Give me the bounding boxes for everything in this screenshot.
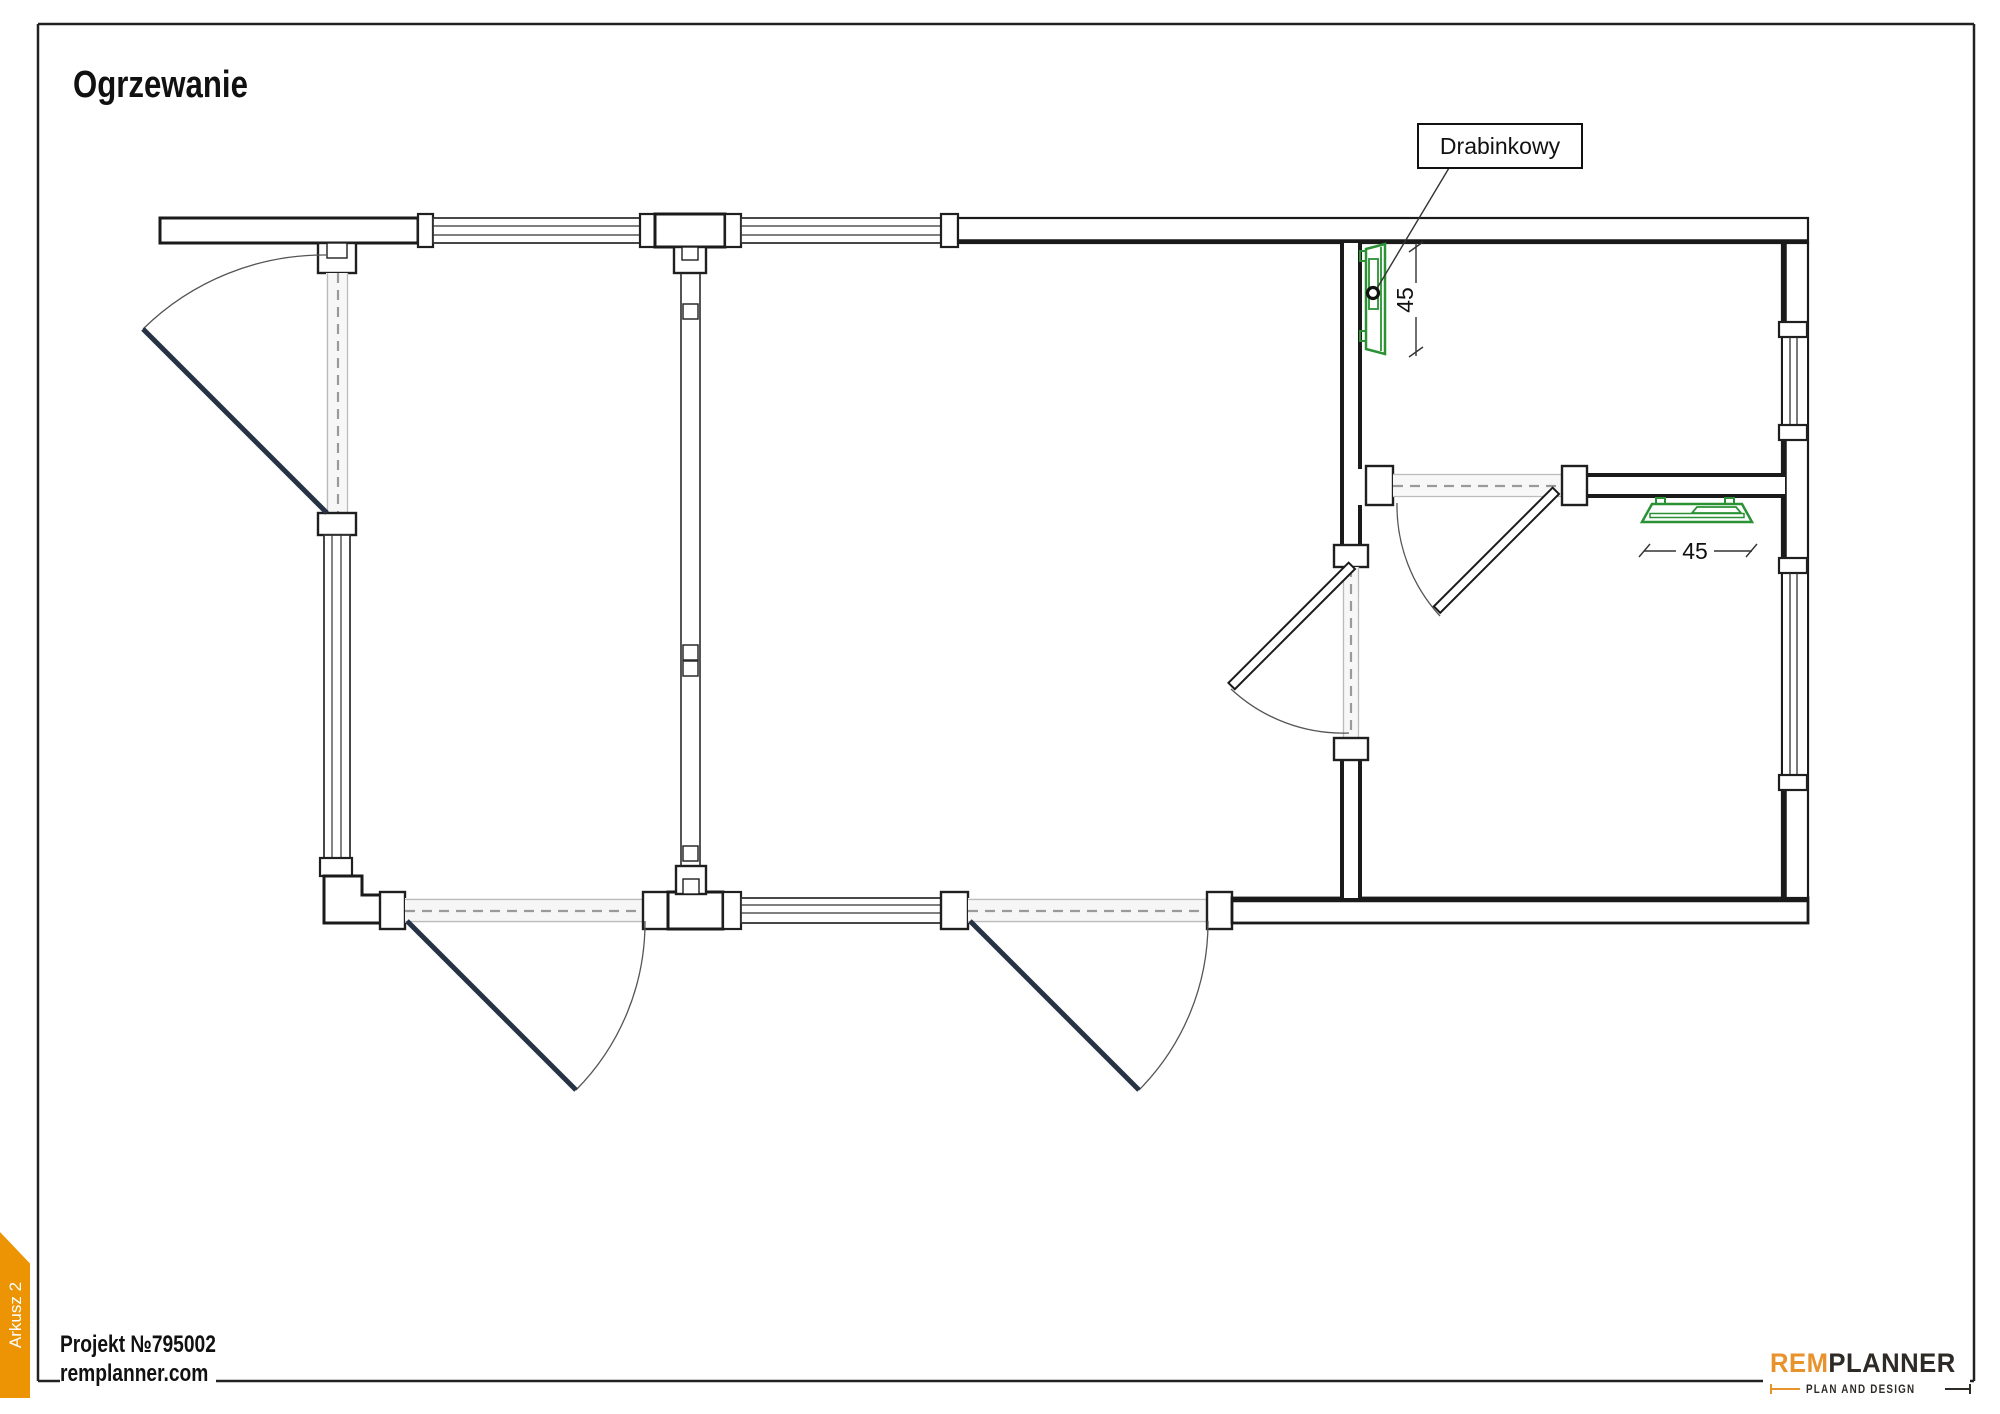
project-number: Projekt №795002 — [60, 1330, 216, 1359]
left-door-opening — [326, 273, 348, 513]
logo-dimline-left — [1770, 1388, 1800, 1390]
door-jamb — [318, 513, 356, 535]
door-jamb — [1334, 738, 1368, 760]
dimension-horizontal-value: 45 — [1682, 538, 1708, 564]
website-link[interactable]: remplanner.com — [60, 1359, 216, 1388]
leader-marker — [1368, 288, 1379, 299]
door-left-wall — [143, 255, 327, 513]
wall-tee-block — [655, 214, 725, 247]
window-jamb — [723, 892, 741, 929]
door-bottom-left — [407, 921, 645, 1090]
door-jamb — [941, 892, 968, 929]
door-bottom-right — [970, 921, 1208, 1090]
right-section-door-opening — [1393, 474, 1562, 497]
right-section-interior-wall — [1366, 466, 1785, 505]
logo-planner: PLANNER — [1828, 1348, 1955, 1378]
window-jamb — [941, 214, 958, 247]
page-title: Ogrzewanie — [73, 64, 248, 107]
annotation-label: Drabinkowy — [1440, 133, 1561, 159]
footer-project-block: Projekt №795002 remplanner.com — [60, 1330, 216, 1388]
logo-rem: REM — [1770, 1348, 1828, 1378]
wall-connector — [683, 645, 698, 660]
wall-connector — [683, 661, 698, 676]
top-window-left-room — [433, 218, 640, 243]
logo-wordmark: REMPLANNER — [1770, 1348, 1960, 1379]
logo-tagline-row: PLAN AND DESIGN — [1770, 1382, 1970, 1396]
sheet-canvas: Drabinkowy 45 45 Ogrzewanie Projekt №795… — [0, 0, 2000, 1414]
towel-radiator-horizontal — [1642, 498, 1752, 522]
door-right-section — [1397, 488, 1559, 616]
partition-door-opening — [1343, 567, 1359, 738]
window-jamb — [320, 858, 352, 876]
window-jamb — [418, 214, 433, 247]
logo-tagline: PLAN AND DESIGN — [1806, 1382, 1915, 1396]
bottom-door-opening-right — [968, 898, 1207, 923]
bottom-door-opening-left — [405, 898, 643, 923]
logo-dimline-right — [1945, 1388, 1971, 1390]
top-window-middle-room — [741, 218, 941, 243]
window-jamb — [725, 214, 741, 247]
left-wall-window — [324, 535, 350, 858]
interior-wall-thin — [681, 273, 700, 866]
door-jamb — [1562, 466, 1587, 505]
bottom-window-middle-room — [741, 898, 941, 923]
right-wall-window-top — [1779, 322, 1807, 440]
remplanner-logo: REMPLANNER PLAN AND DESIGN — [1770, 1348, 1970, 1396]
wall-tee-block — [668, 892, 723, 929]
left-exterior-wall — [318, 243, 397, 923]
dimension-vertical-value: 45 — [1392, 287, 1418, 313]
right-wall-window-bottom — [1779, 558, 1807, 790]
bottom-exterior-wall — [380, 866, 1808, 929]
window-jamb — [640, 214, 655, 247]
door-jamb — [1207, 892, 1232, 929]
wall-connector — [683, 846, 698, 861]
door-partition-wall — [1228, 563, 1355, 733]
door-jamb — [1366, 466, 1393, 505]
door-jamb — [643, 892, 668, 929]
floor-plan-drawing: Drabinkowy 45 45 — [0, 0, 2000, 1414]
right-exterior-wall — [1779, 243, 1808, 898]
wall-connector — [683, 304, 698, 319]
exterior-top-wall — [160, 214, 1808, 273]
door-jamb — [380, 892, 405, 929]
